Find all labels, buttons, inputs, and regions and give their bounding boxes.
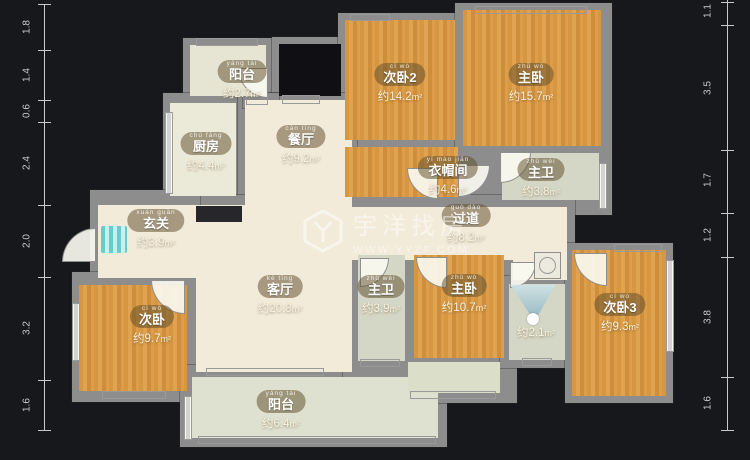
window-kitchen-left xyxy=(165,112,173,194)
room-label-entry: xuán guān玄关 约3.9m² xyxy=(127,201,184,250)
dim-label: 1.6 xyxy=(703,396,714,410)
watermark-title: 宇洋找房 xyxy=(353,206,469,241)
room-label-master-bottom: zhǔ wò主卧 约10.7m² xyxy=(442,266,487,315)
dim-label: 3.8 xyxy=(703,310,714,324)
dim-label: 1.7 xyxy=(703,173,714,187)
room-label-bedroom2: cì wò次卧2 约14.2m² xyxy=(374,55,425,104)
room-floor-balcony-bottom xyxy=(192,377,438,438)
room-floor-utility-balcony xyxy=(408,362,500,393)
room-label-bedroom3: cì wò次卧3 约9.3m² xyxy=(594,285,645,334)
floor-plan-viewer: yáng tái阳台 约2.7m² chú fáng厨房 约4.4m² cān … xyxy=(0,0,750,460)
dim-label: 1.1 xyxy=(703,4,714,18)
room-label-balcony-top: yáng tái阳台 约2.7m² xyxy=(218,52,267,101)
window-bedroom-left-side xyxy=(72,303,80,361)
dim-label: 1.2 xyxy=(703,228,714,242)
window-utility-bottom xyxy=(410,391,496,399)
window-balcony-bottom-left xyxy=(184,396,192,440)
window-void-shaft xyxy=(282,95,320,104)
window-bedroom2-top xyxy=(350,14,390,21)
dim-label: 1.6 xyxy=(22,398,33,412)
door-arc-entrance xyxy=(62,228,96,262)
room-floor-void-shaft xyxy=(279,44,341,96)
room-label-cloakroom: yī mào jiān衣帽间 约4.6m² xyxy=(418,148,478,197)
window-master-top xyxy=(475,6,587,14)
living-cabinet xyxy=(196,206,242,222)
dim-label: 0.6 xyxy=(22,104,33,118)
room-label-living: kè tīng客厅 约20.8m² xyxy=(258,267,303,316)
room-label-dining: cān tīng餐厅 约9.2m² xyxy=(276,117,325,166)
dim-label: 1.8 xyxy=(22,20,33,34)
watermark-logo xyxy=(303,209,343,253)
room-label-bath-top: zhǔ wèi主卫 约3.8m² xyxy=(517,150,564,199)
washing-machine xyxy=(534,252,561,279)
room-label-balcony-bottom: yáng tái阳台 约6.4m² xyxy=(257,382,306,431)
window-bath-mid-bottom xyxy=(360,359,400,367)
dim-label: 2.4 xyxy=(22,156,33,170)
window-bath-top-right xyxy=(599,163,607,209)
window-bath-small-bottom xyxy=(522,358,552,366)
watermark: 宇洋找房 WWW.YYZF.COM xyxy=(303,206,469,256)
entry-shoe-mat xyxy=(101,226,127,253)
dim-label: 1.4 xyxy=(22,68,33,82)
sliding-door-living-balcony xyxy=(206,368,324,376)
window-balcony-bottom xyxy=(198,436,436,444)
window-bedroom3-top xyxy=(614,244,662,252)
room-label-master-top: zhǔ wò主卧 约15.7m² xyxy=(509,55,554,104)
window-bedroom-left-bottom xyxy=(102,391,166,399)
window-bedroom3-right xyxy=(666,260,674,352)
window-balcony-top xyxy=(196,38,258,46)
dim-label: 3.5 xyxy=(703,81,714,95)
room-label-bath-mid: zhǔ wèi主卫 约3.9m² xyxy=(357,267,404,316)
room-label-kitchen: chú fáng厨房 约4.4m² xyxy=(181,124,232,173)
dim-label: 2.0 xyxy=(22,234,33,248)
room-label-bath-small: 约2.1m² xyxy=(517,322,555,340)
room-label-bedroom-left: cì wò次卧 约9.7m² xyxy=(130,297,174,346)
watermark-url: WWW.YYZF.COM xyxy=(353,244,469,256)
dim-label: 3.2 xyxy=(22,321,33,335)
